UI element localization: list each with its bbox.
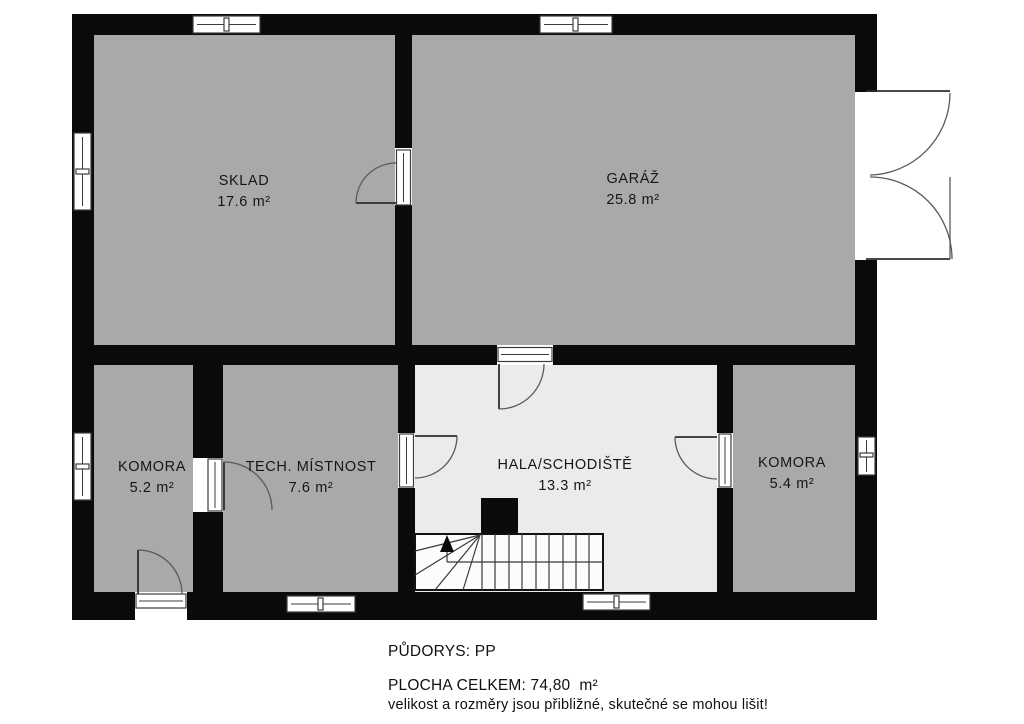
plan-title: PŮDORYS: PP [388,643,496,661]
garage-door [866,91,952,259]
window [287,596,355,612]
room-area: 17.6 m² [217,192,270,213]
window [858,437,875,475]
room-label-komora-left: KOMORA 5.2 m² [118,457,186,499]
room-label-tech-mistnost: TECH. MÍSTNOST 7.6 m² [246,457,377,499]
floorplan-canvas: SKLAD 17.6 m² GARÁŽ 25.8 m² KOMORA 5.2 m… [0,0,1024,724]
window [540,16,612,33]
window [193,16,260,33]
room-name: KOMORA [758,453,826,474]
room-name: SKLAD [217,171,270,192]
plan-total-area: PLOCHA CELKEM: 74,80 m² [388,677,598,695]
room-area: 5.2 m² [118,478,186,499]
plan-disclaimer: velikost a rozměry jsou přibližné, skute… [388,697,768,713]
room-name: TECH. MÍSTNOST [246,457,377,478]
room-label-komora-right: KOMORA 5.4 m² [758,453,826,495]
room-area: 13.3 m² [498,476,633,497]
window [74,133,91,210]
room-label-garaz: GARÁŽ 25.8 m² [606,169,659,211]
room-area: 7.6 m² [246,478,377,499]
room-label-hala: HALA/SCHODIŠTĚ 13.3 m² [498,455,633,497]
staircase [415,534,603,590]
floorplan-drawing [0,0,1024,724]
room-name: HALA/SCHODIŠTĚ [498,455,633,476]
chimney-pillar [481,498,518,534]
window [74,433,91,500]
room-label-sklad: SKLAD 17.6 m² [217,171,270,213]
room-name: GARÁŽ [606,169,659,190]
room-area: 25.8 m² [606,190,659,211]
window [583,594,650,610]
room-area: 5.4 m² [758,474,826,495]
room-name: KOMORA [118,457,186,478]
